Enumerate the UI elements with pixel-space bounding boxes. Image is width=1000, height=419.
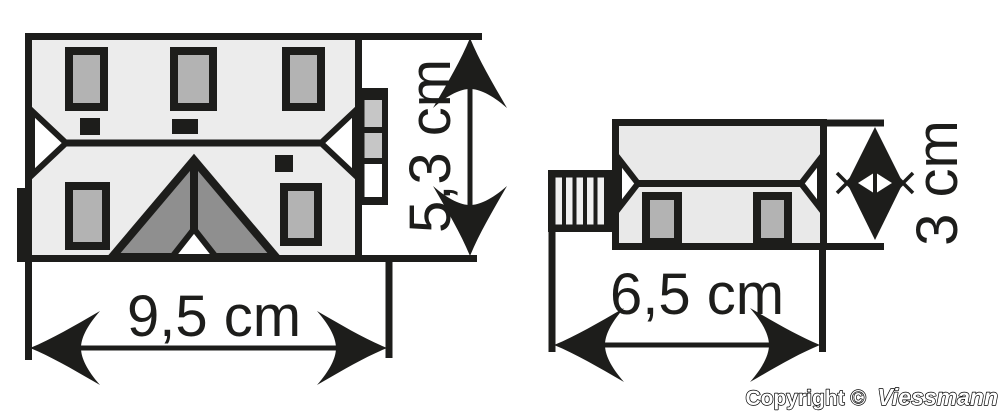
annex-skylight [365,133,383,158]
stair-step [556,178,563,225]
dimension-label-height-right: 3 cm [905,120,970,246]
roof-window [286,51,321,107]
wall-step [17,188,32,262]
dimension-right-height: 3 cm [827,120,970,246]
dimension-label-width-left: 9,5 cm [127,284,301,349]
dimension-label-height-left: 5,3 cm [398,59,463,233]
dimension-right-width: 6,5 cm [552,232,823,382]
roof-window [757,196,788,242]
roof-window [646,196,678,242]
stair-step [587,178,594,225]
diagram-canvas: 5,3 cm 9,5 cm [0,0,1000,419]
side-annex [358,88,388,205]
brand-logo-text: Viessmann [877,384,998,410]
chimney [172,119,198,134]
roof-window [174,51,213,107]
entrance-stairs [548,170,612,232]
stair-step [566,178,573,225]
dimension-left-width: 9,5 cm [29,258,390,385]
copyright-prefix: Copyright © [745,387,866,410]
chimney [80,118,100,135]
chimney [275,155,293,172]
stair-step [598,178,605,225]
roof-window [284,187,318,242]
compressed-double-arrow-icon [847,127,903,240]
small-building-roof-plan [548,123,824,247]
dimension-diagram: 5,3 cm 9,5 cm [0,0,1000,419]
roof-window [69,186,106,246]
stair-step [577,178,584,225]
copyright-text: Copyright © Viessmann [745,384,998,410]
dimension-label-width-right: 6,5 cm [610,262,784,327]
roof-window [69,51,104,107]
annex-skylight [365,100,383,127]
annex-panel [365,164,383,197]
